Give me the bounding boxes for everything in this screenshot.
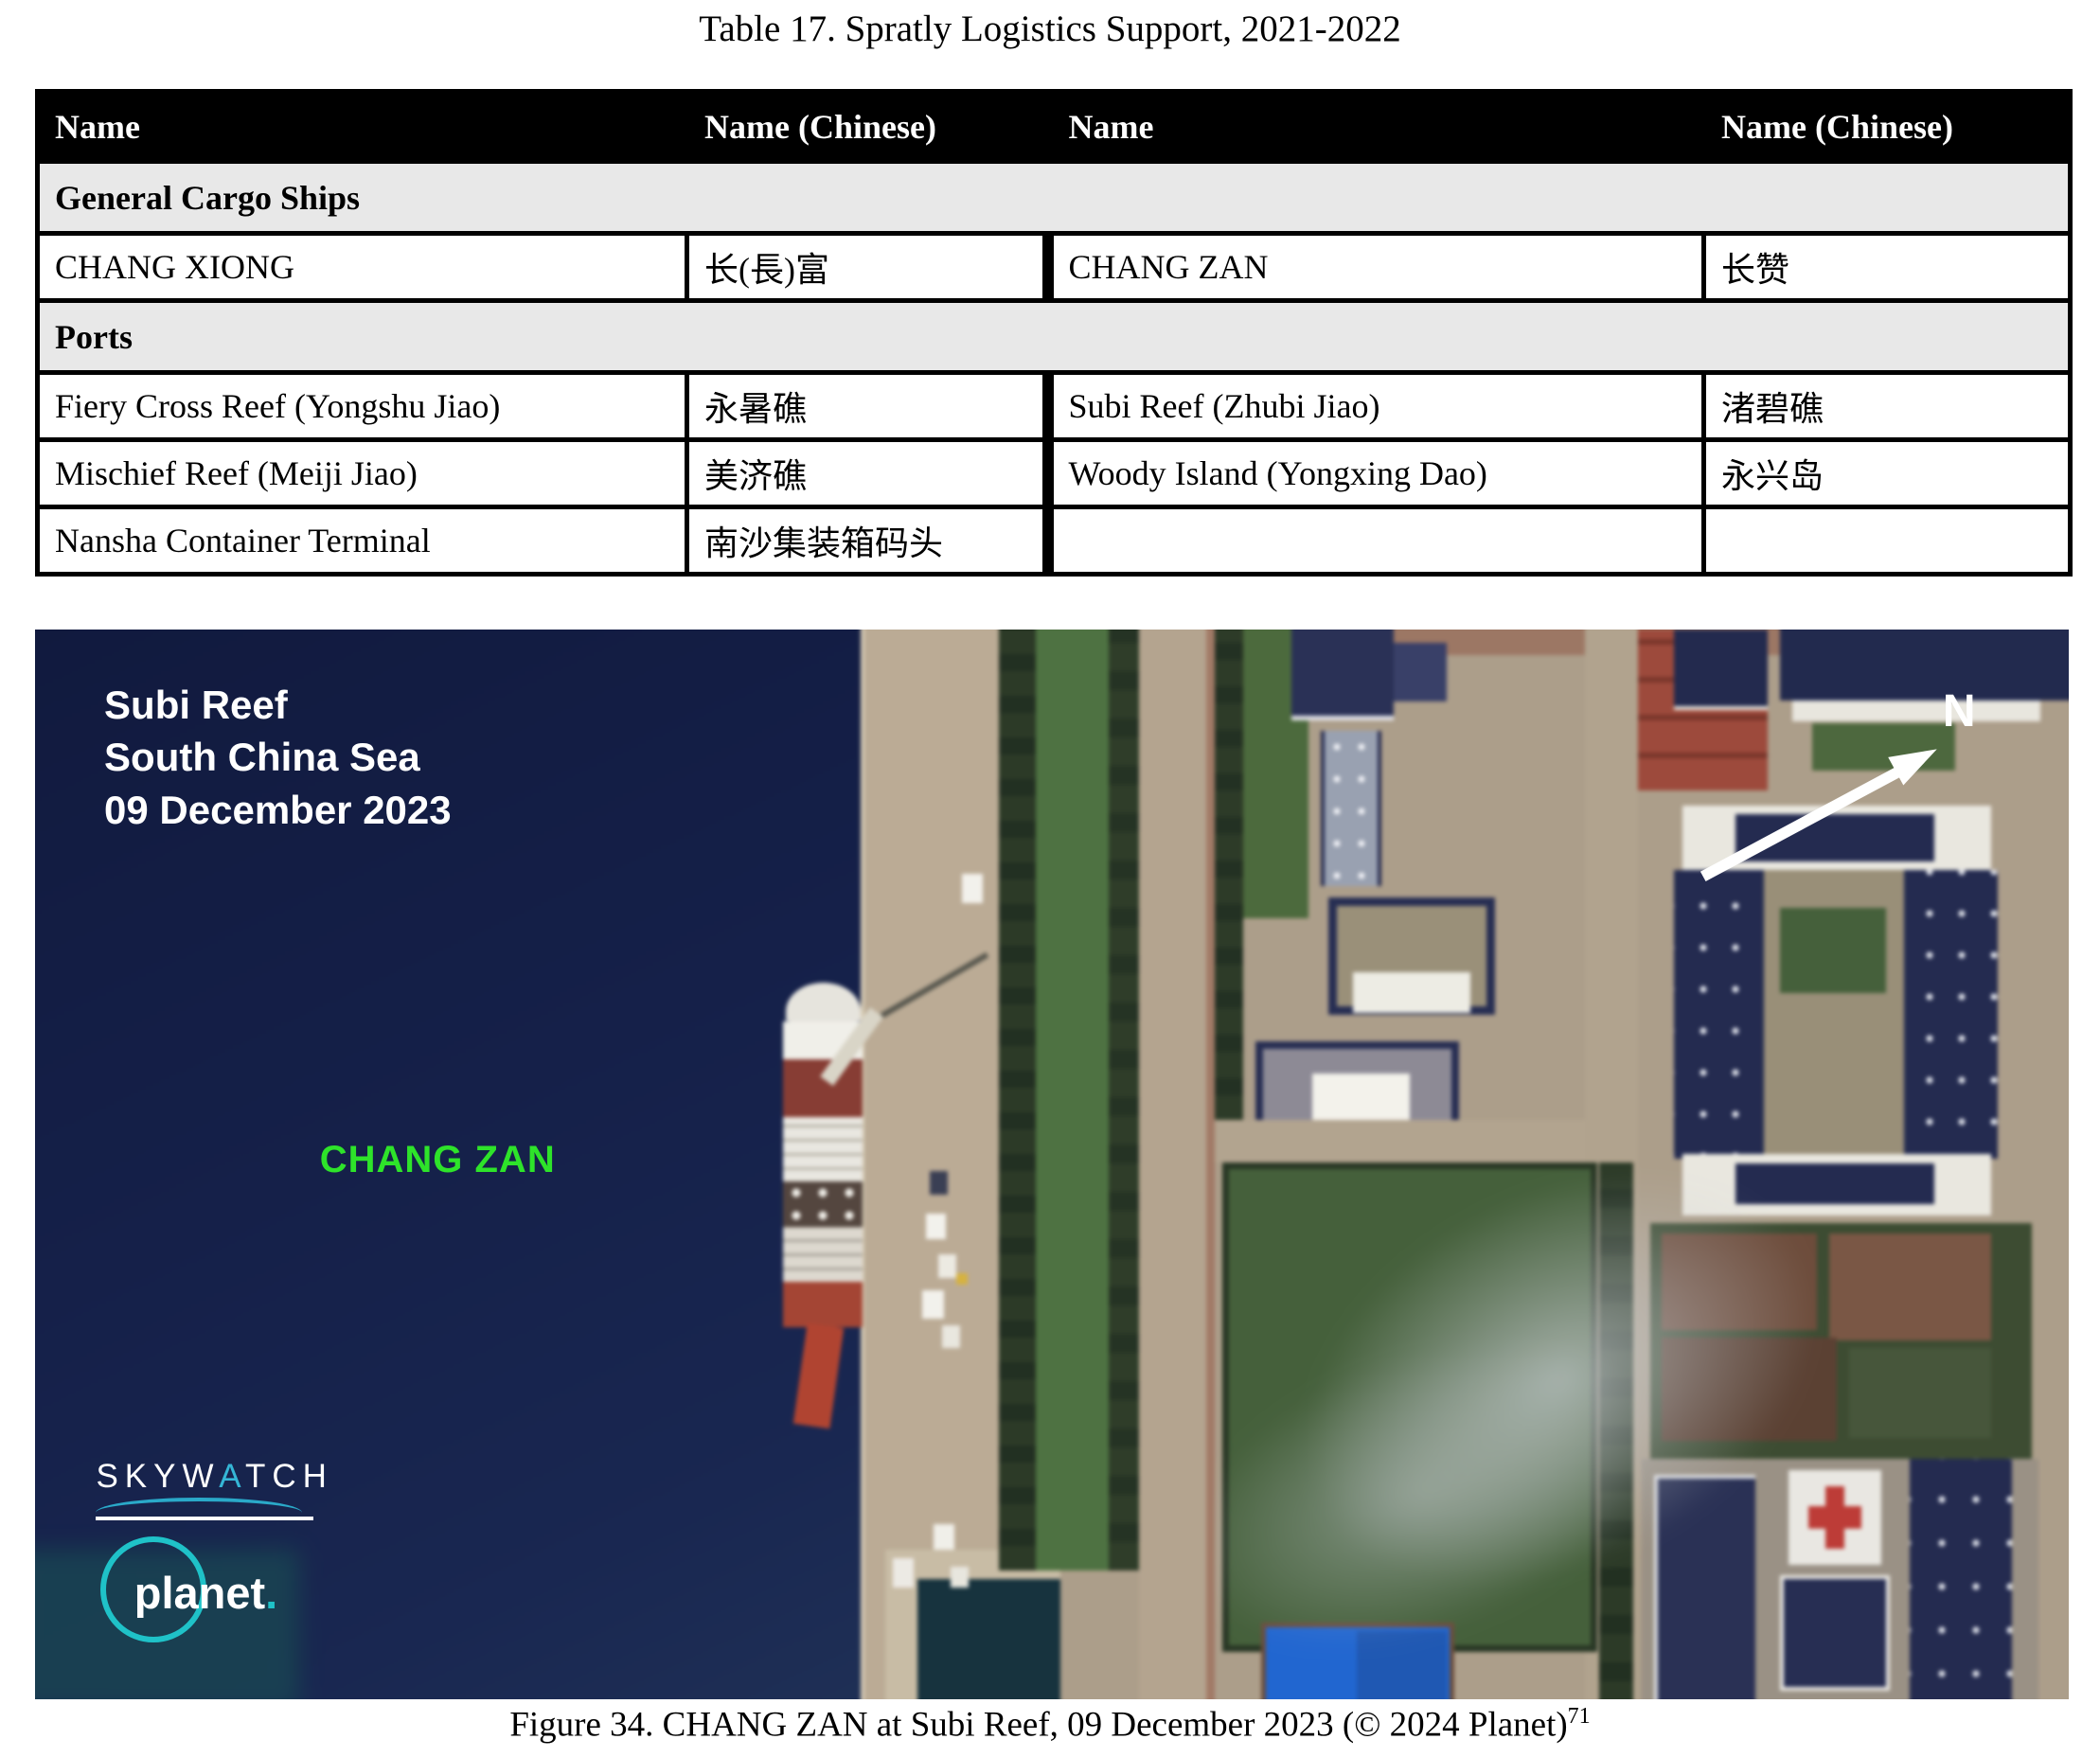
skywatch-wordmark: SKYWATCH — [96, 1458, 332, 1496]
cargo-ship-containers — [783, 1227, 863, 1283]
table-row: CHANG XIONG 长(長)富 CHANG ZAN 长赞 — [38, 234, 2071, 301]
truck — [934, 1524, 953, 1550]
courtyard-lawn — [1780, 908, 1886, 993]
table-cell: 南沙集装箱码头 — [687, 507, 1048, 575]
building-trim — [1792, 701, 2040, 722]
image-date: 09 December 2023 — [104, 784, 452, 836]
grass-strip — [1036, 630, 1109, 1571]
location-overlay: Subi Reef South China Sea 09 December 20… — [104, 679, 452, 836]
footnote-marker: 71 — [1568, 1704, 1591, 1729]
red-cross-icon — [1808, 1486, 1861, 1549]
location-region: South China Sea — [104, 731, 452, 783]
truck — [942, 1325, 960, 1349]
table-cell: 长(長)富 — [687, 234, 1048, 301]
building — [1291, 630, 1393, 720]
table-cell: 渚碧礁 — [1704, 373, 2071, 440]
road — [1139, 630, 1210, 1699]
table-cell: 美济礁 — [687, 440, 1048, 507]
truck — [926, 1214, 946, 1239]
truck — [922, 1290, 945, 1318]
location-name: Subi Reef — [104, 679, 452, 731]
figure-caption: Figure 34. CHANG ZAN at Subi Reef, 09 De… — [0, 1704, 2100, 1745]
table-row: Nansha Container Terminal 南沙集装箱码头 — [38, 507, 2071, 575]
section-row: Ports — [38, 301, 2071, 373]
planet-logo: planet. — [100, 1536, 413, 1648]
tree-line — [1215, 630, 1243, 1122]
table-cell: CHANG ZAN — [1048, 234, 1704, 301]
table-cell: CHANG XIONG — [38, 234, 687, 301]
satellite-image: Subi Reef South China Sea 09 December 20… — [35, 630, 2069, 1699]
tree-line — [1109, 630, 1139, 1571]
table-cell: Fiery Cross Reef (Yongshu Jiao) — [38, 373, 687, 440]
building — [1321, 731, 1381, 886]
header-name-chinese-2: Name (Chinese) — [1704, 92, 2071, 162]
header-name-2: Name — [1048, 92, 1704, 162]
cargo-ship-containers — [783, 1117, 863, 1181]
building — [1394, 643, 1447, 701]
hospital-building — [1780, 1575, 1890, 1691]
building — [1674, 630, 1768, 710]
table-row: Fiery Cross Reef (Yongshu Jiao) 永暑礁 Subi… — [38, 373, 2071, 440]
north-arrow-icon — [1693, 726, 1957, 887]
table-row: Mischief Reef (Meiji Jiao) 美济礁 Woody Isl… — [38, 440, 2071, 507]
truck — [951, 1567, 969, 1588]
truck — [962, 874, 982, 904]
north-label: N — [1943, 685, 1976, 737]
table-cell — [1704, 507, 2071, 575]
harbor-basin — [917, 1579, 1059, 1699]
road — [1215, 1120, 1585, 1162]
table-cell: Subi Reef (Zhubi Jiao) — [1048, 373, 1704, 440]
table-header-row: Name Name (Chinese) Name Name (Chinese) — [38, 92, 2071, 162]
building-roof — [1780, 630, 2069, 701]
cargo-ship-stern — [783, 1282, 863, 1326]
header-name-chinese-1: Name (Chinese) — [687, 92, 1048, 162]
section-row: General Cargo Ships — [38, 162, 2071, 234]
skywatch-underline — [96, 1517, 313, 1520]
header-name-1: Name — [38, 92, 687, 162]
complex-wing — [1904, 870, 1998, 1159]
table-cell: 永暑礁 — [687, 373, 1048, 440]
table-cell — [1048, 507, 1704, 575]
skywatch-a-glyph: A — [219, 1458, 245, 1495]
logistics-table: Name Name (Chinese) Name Name (Chinese) … — [35, 89, 2073, 577]
table-cell: 永兴岛 — [1704, 440, 2071, 507]
cargo-ship-hull — [783, 1059, 863, 1117]
truck — [938, 1254, 956, 1278]
cargo-ship-deck — [783, 1181, 863, 1226]
small-boat — [893, 1558, 913, 1588]
truck — [930, 1171, 948, 1195]
skywatch-logo: SKYWATCH — [96, 1458, 332, 1520]
building-trim — [1353, 972, 1471, 1013]
table-cell: 长赞 — [1704, 234, 2071, 301]
hospital-building — [1910, 1459, 2011, 1699]
tree-line — [999, 630, 1036, 1571]
section-label-cargo-ships: General Cargo Ships — [38, 162, 2071, 234]
ship-label: CHANG ZAN — [320, 1139, 556, 1181]
planet-dot: . — [265, 1568, 277, 1618]
table-title: Table 17. Spratly Logistics Support, 202… — [0, 8, 2100, 50]
table-cell: Woody Island (Yongxing Dao) — [1048, 440, 1704, 507]
section-label-ports: Ports — [38, 301, 2071, 373]
road-edge — [1206, 630, 1215, 1699]
skywatch-swoosh — [96, 1498, 302, 1513]
table-cell: Mischief Reef (Meiji Jiao) — [38, 440, 687, 507]
planet-wordmark: planet. — [134, 1567, 277, 1619]
truck — [956, 1273, 968, 1284]
table-cell: Nansha Container Terminal — [38, 507, 687, 575]
